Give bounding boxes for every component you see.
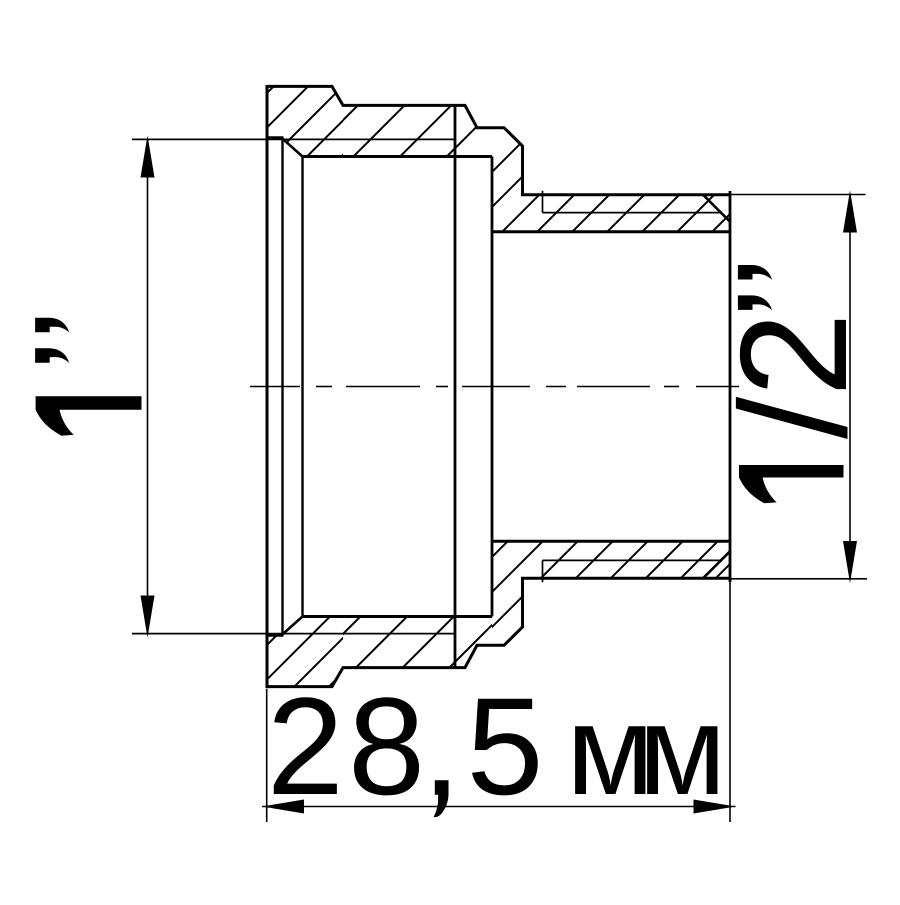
svg-text:28: 28 [267,670,429,824]
svg-text:/2: /2 [709,312,879,439]
svg-text:5: 5 [467,670,544,824]
svg-text:мм: мм [566,679,718,822]
